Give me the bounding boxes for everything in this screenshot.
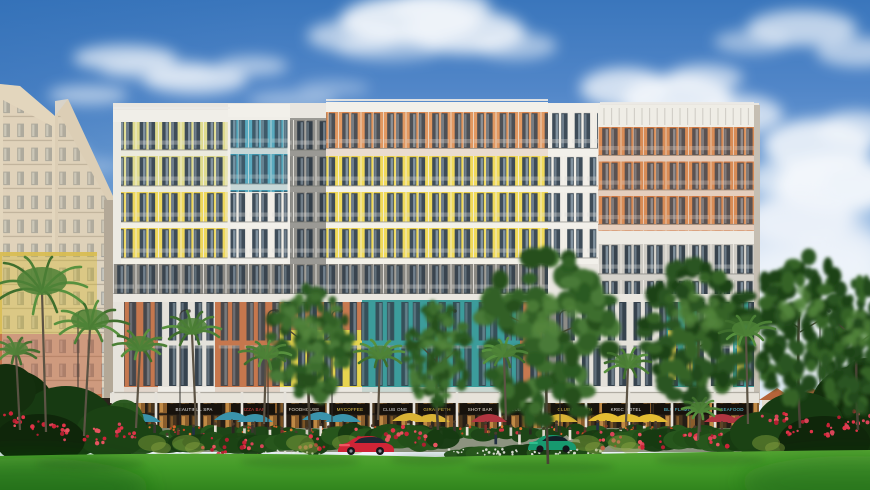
svg-text:BEAUTIFUL SPA: BEAUTIFUL SPA [175, 407, 212, 412]
svg-text:SEAFOOD: SEAFOOD [720, 407, 744, 412]
svg-text:PIZZA BAR: PIZZA BAR [241, 407, 266, 412]
svg-text:MYCOFFEE: MYCOFFEE [337, 407, 364, 412]
svg-text:CLUB ONE: CLUB ONE [383, 407, 408, 412]
svg-text:FOODHOUSE: FOODHOUSE [289, 407, 320, 412]
svg-text:SHOT BAR: SHOT BAR [468, 407, 493, 412]
